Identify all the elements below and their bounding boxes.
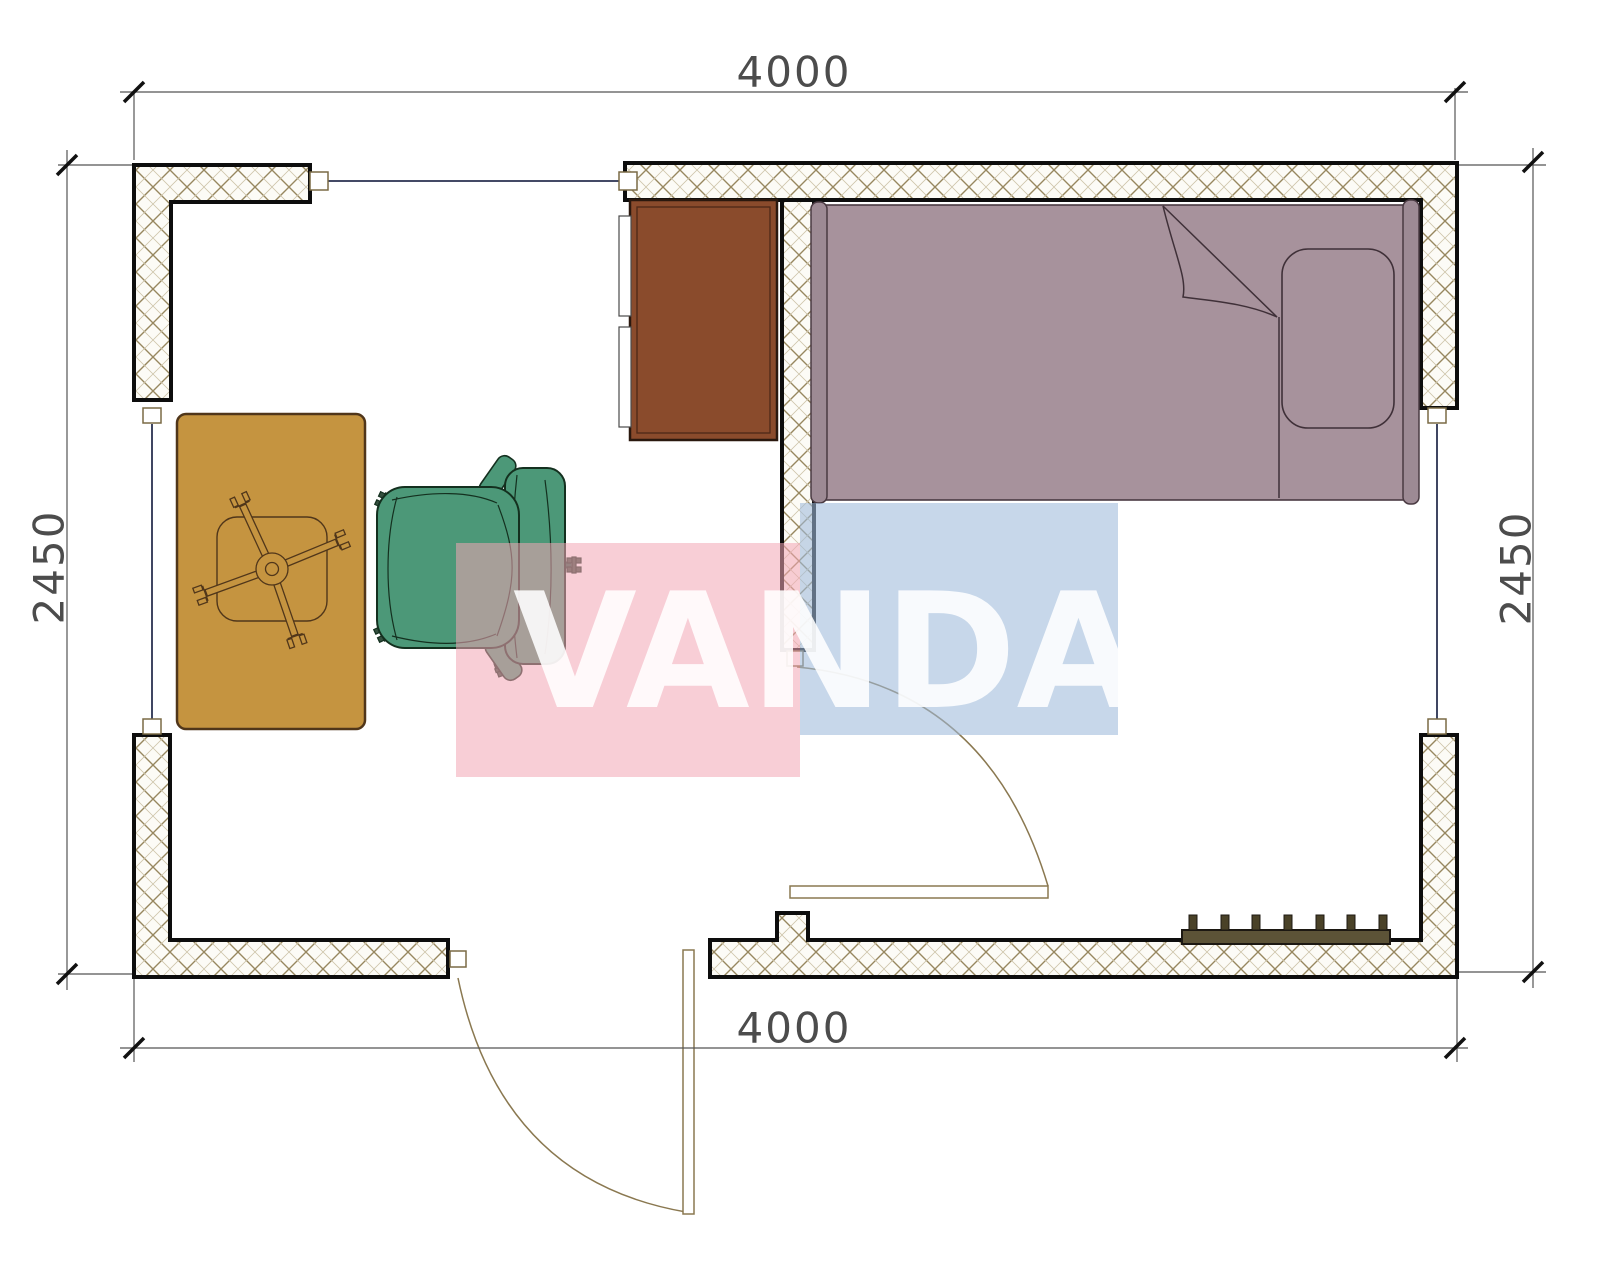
wall-bottom-left-L <box>134 735 448 977</box>
dimension-label-right: 2450 <box>1492 511 1541 626</box>
dimension-label-left: 2450 <box>25 510 74 625</box>
table <box>177 414 365 729</box>
bed-pillow <box>1282 249 1394 428</box>
exterior-door-leaf <box>683 950 694 1214</box>
exterior-door <box>458 950 694 1214</box>
bed-headboard <box>1403 200 1419 504</box>
wardrobe <box>619 200 777 440</box>
bed <box>811 200 1419 504</box>
wall-top-left-L <box>134 165 310 400</box>
watermark-text: VANDA <box>513 572 1140 732</box>
floorplan-canvas: VANDA 4000 4000 2450 2450 <box>0 0 1600 1280</box>
bed-footboard <box>811 202 827 503</box>
exterior-door-arc <box>458 978 686 1212</box>
interior-door-leaf <box>790 886 1048 898</box>
radiator <box>1182 915 1390 944</box>
dimension-label-bottom: 4000 <box>737 1004 852 1053</box>
dimension-label-top: 4000 <box>737 48 852 97</box>
